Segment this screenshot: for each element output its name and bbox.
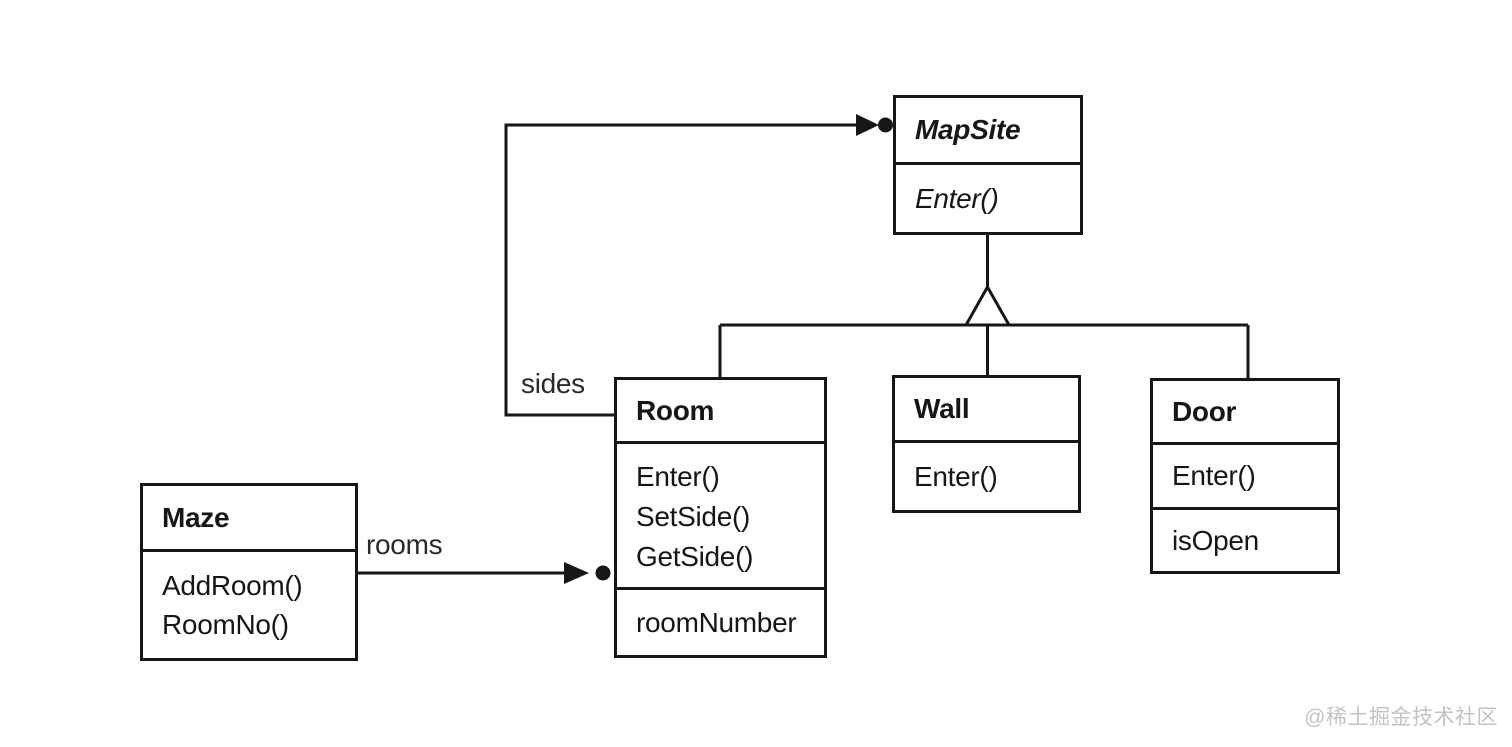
sides-multiplicity-ball-icon xyxy=(878,118,893,133)
class-title-maze: Maze xyxy=(143,486,355,552)
class-box-maze: Maze AddRoom() RoomNo() xyxy=(140,483,358,661)
class-method-maze-roomno: RoomNo() xyxy=(162,605,355,644)
inheritance-triangle-icon xyxy=(966,287,1009,325)
class-method-room-enter: Enter() xyxy=(636,457,824,497)
diagram-canvas: MapSite Enter() Room Enter() SetSide() G… xyxy=(0,0,1512,747)
class-attribute-door-isopen: isOpen xyxy=(1153,510,1337,571)
class-box-wall: Wall Enter() xyxy=(892,375,1081,513)
class-methods-room: Enter() SetSide() GetSide() xyxy=(617,444,824,590)
class-method-mapsite-enter: Enter() xyxy=(896,165,1080,232)
class-method-room-getside: GetSide() xyxy=(636,537,824,577)
association-label-rooms: rooms xyxy=(366,529,442,561)
watermark-text: @稀土掘金技术社区 xyxy=(1304,701,1498,731)
class-box-mapsite: MapSite Enter() xyxy=(893,95,1083,235)
class-box-door: Door Enter() isOpen xyxy=(1150,378,1340,574)
class-title-room: Room xyxy=(617,380,824,444)
association-label-sides: sides xyxy=(521,368,585,400)
class-method-door-enter: Enter() xyxy=(1153,445,1337,510)
class-box-room: Room Enter() SetSide() GetSide() roomNum… xyxy=(614,377,827,658)
rooms-multiplicity-ball-icon xyxy=(596,566,611,581)
class-method-maze-addroom: AddRoom() xyxy=(162,566,355,605)
class-methods-maze: AddRoom() RoomNo() xyxy=(143,552,355,658)
rooms-arrowhead-icon xyxy=(564,562,589,584)
sides-arrowhead-icon xyxy=(856,114,879,136)
class-method-room-setside: SetSide() xyxy=(636,497,824,537)
class-title-wall: Wall xyxy=(895,378,1078,443)
class-method-wall-enter: Enter() xyxy=(895,443,1078,510)
class-title-mapsite: MapSite xyxy=(896,98,1080,165)
class-attribute-room-roomnumber: roomNumber xyxy=(617,590,824,655)
class-title-door: Door xyxy=(1153,381,1337,445)
